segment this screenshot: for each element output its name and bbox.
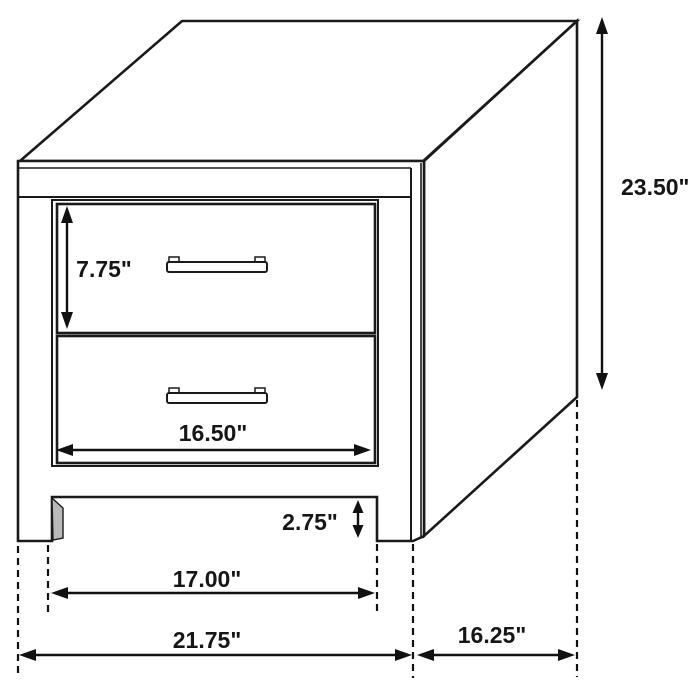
- overall-width-dimension-label: 21.75": [173, 627, 241, 653]
- drawer-height-dimension-label: 7.75": [76, 256, 132, 282]
- depth-dimension: 16.25": [417, 622, 575, 661]
- inner-width-dimension: 17.00": [51, 566, 375, 599]
- overall-width-dimension: 21.75": [19, 627, 412, 661]
- height-dimension-label: 23.50": [621, 174, 689, 200]
- drawer-width-dimension-label: 16.50": [179, 420, 247, 446]
- left-leg-side-face: [52, 498, 63, 540]
- inner-width-dimension-label: 17.00": [173, 566, 241, 592]
- depth-dimension-label: 16.25": [458, 622, 526, 648]
- clearance-dimension: 2.75": [282, 500, 363, 538]
- nightstand-dimension-diagram: 23.50" 7.75" 16.50" 2.75" 17: [0, 0, 700, 700]
- clearance-dimension-label: 2.75": [282, 509, 338, 535]
- diagram-canvas: 23.50" 7.75" 16.50" 2.75" 17: [0, 0, 700, 700]
- height-dimension: 23.50": [596, 17, 689, 390]
